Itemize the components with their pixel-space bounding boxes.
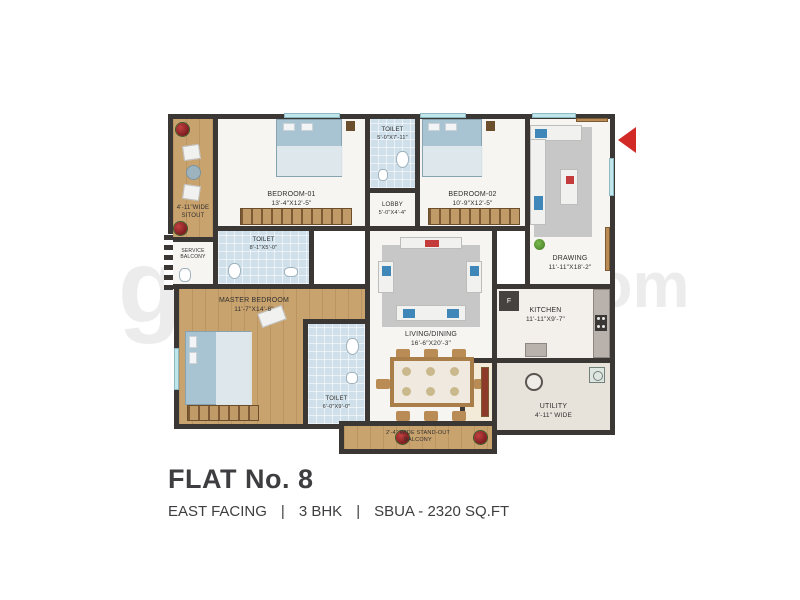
side-table-icon xyxy=(346,121,355,131)
toilet-wc-icon xyxy=(346,338,359,355)
living-dining-label: LIVING/DINING 16'-6"X20'-3" xyxy=(370,331,492,348)
kitchen-label: KITCHEN 11'-11"X9'-7" xyxy=(489,307,602,324)
side-table-icon xyxy=(486,121,495,131)
drawing-label: DRAWING 11'-11"X18'-2" xyxy=(530,255,610,272)
east-arrow-icon xyxy=(618,127,636,153)
plant-icon xyxy=(534,239,545,250)
dining-table-icon xyxy=(390,357,474,407)
kitchen-sink-icon xyxy=(525,343,547,357)
room-toilet-mid: TOILET 8'-1"X5'-0" xyxy=(213,226,314,289)
flower-pot-icon xyxy=(174,222,187,235)
room-utility: UTILITY 4'-11" WIDE xyxy=(492,358,615,435)
floor-plan: 4'-11"WIDE SITOUT SERVICE BALCONY BEDROO… xyxy=(164,106,622,456)
flat-subtitle: EAST FACING | 3 BHK | SBUA - 2320 SQ.FT xyxy=(168,503,509,520)
sitout-chair-icon xyxy=(182,184,201,201)
sitout-chair-icon xyxy=(182,144,201,161)
sitout-table-icon xyxy=(186,165,201,180)
wardrobe-icon xyxy=(428,208,520,225)
washbasin-icon xyxy=(284,267,298,277)
room-lobby: LOBBY 5'-0"X4'-4" xyxy=(365,188,420,231)
toilet-master-label: TOILET 6'-0"X9'-0" xyxy=(308,396,365,410)
bedroom2-label: BEDROOM-02 10'-9"X12'-5" xyxy=(420,191,525,208)
toilet-mid-label: TOILET 8'-1"X5'-0" xyxy=(218,237,309,251)
sbua-text: SBUA - 2320 SQ.FT xyxy=(374,503,509,520)
room-sitout: 4'-11"WIDE SITOUT xyxy=(168,114,218,242)
wardrobe-icon xyxy=(240,208,352,225)
sitout-label: 4'-11"WIDE SITOUT xyxy=(173,205,213,220)
bed-icon xyxy=(185,331,251,405)
room-service-balcony: SERVICE BALCONY xyxy=(168,237,218,289)
separator: | xyxy=(356,503,360,520)
washing-machine-icon xyxy=(589,367,605,383)
tv-unit-icon xyxy=(400,237,462,249)
toilet-wc-icon xyxy=(228,263,241,279)
coffee-table-icon xyxy=(560,169,578,205)
bedroom1-label: BEDROOM-01 13'-4"X12'-5" xyxy=(218,191,365,208)
duct-ticks-icon xyxy=(164,234,173,290)
room-toilet-top: TOILET 5'-0"X7'-11" xyxy=(365,114,420,193)
window-icon xyxy=(420,113,466,118)
room-kitchen: F KITCHEN 11'-11"X9'-7" xyxy=(492,284,615,363)
bed-icon xyxy=(422,119,482,177)
separator: | xyxy=(281,503,285,520)
utility-sink-icon xyxy=(525,373,543,391)
window-icon xyxy=(174,348,179,390)
floor-plan-page: g .com 4'-11"WIDE SITOUT SERVICE BALCONY xyxy=(0,0,800,600)
service-balcony-label: SERVICE BALCONY xyxy=(173,248,213,261)
wardrobe-icon xyxy=(187,405,259,421)
room-bedroom-02: BEDROOM-02 10'-9"X12'-5" xyxy=(415,114,530,231)
washbasin-icon xyxy=(378,169,388,181)
utility-sink-icon xyxy=(179,268,191,282)
utility-label: UTILITY 4'-11" WIDE xyxy=(497,403,610,420)
sofa-icon xyxy=(396,305,466,321)
room-toilet-master: TOILET 6'-0"X9'-0" xyxy=(303,319,370,429)
entrance-door-icon xyxy=(605,227,610,271)
window-icon xyxy=(284,113,340,118)
master-bedroom-label: MASTER BEDROOM 11'-7"X14'-6" xyxy=(161,297,347,314)
main-door-icon xyxy=(576,118,608,122)
bhk-text: 3 BHK xyxy=(299,503,342,520)
facing-text: EAST FACING xyxy=(168,503,267,520)
washbasin-icon xyxy=(346,372,358,384)
bed-icon xyxy=(276,119,342,177)
window-icon xyxy=(532,113,576,118)
window-icon xyxy=(609,158,614,196)
sofa-icon xyxy=(530,139,546,225)
puja-door-icon xyxy=(481,367,489,417)
lobby-label: LOBBY 5'-0"X4'-4" xyxy=(370,202,415,216)
toilet-top-label: TOILET 5'-0"X7'-11" xyxy=(370,127,415,141)
title-block: FLAT No. 8 EAST FACING | 3 BHK | SBUA - … xyxy=(168,464,509,520)
room-drawing: DRAWING 11'-11"X18'-2" xyxy=(525,114,615,289)
flat-title: FLAT No. 8 xyxy=(168,464,509,495)
room-bedroom-01: BEDROOM-01 13'-4"X12'-5" xyxy=(213,114,370,231)
toilet-wc-icon xyxy=(396,151,409,168)
sofa-icon xyxy=(466,261,482,293)
flower-pot-icon xyxy=(176,123,189,136)
balcony-label: 2'-4" WIDE STAND-OUT BALCONY xyxy=(344,430,492,444)
room-balcony: 2'-4" WIDE STAND-OUT BALCONY xyxy=(339,421,497,454)
sofa-icon xyxy=(378,261,394,293)
